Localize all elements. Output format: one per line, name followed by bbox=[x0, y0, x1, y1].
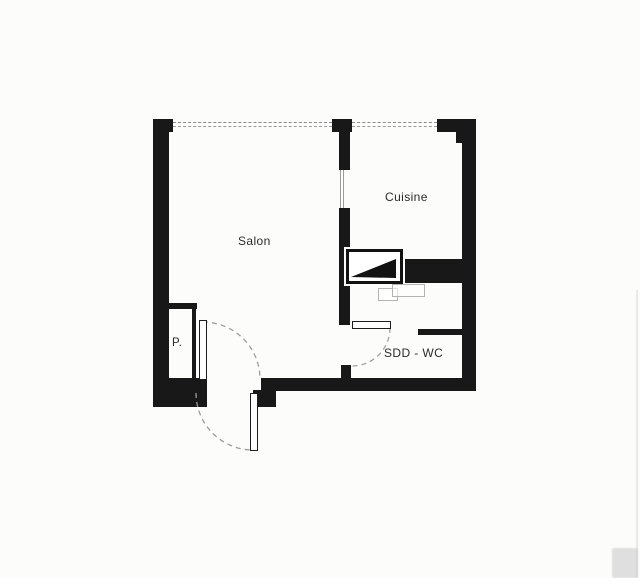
floor-plan-canvas: Salon Cuisine P. SDD - WC bbox=[0, 0, 640, 578]
entry-door-leaf-outer bbox=[250, 393, 258, 451]
technical-duct bbox=[346, 249, 403, 284]
top-window-cuisine bbox=[352, 122, 437, 127]
interior-glazed-panel bbox=[340, 170, 344, 208]
wall-bottom bbox=[261, 378, 476, 391]
washbasin-outline-right bbox=[392, 284, 425, 297]
wall-partition-upper bbox=[339, 132, 350, 170]
room-label-sdd-wc: SDD - WC bbox=[384, 346, 443, 360]
wall-cuisine-bottom bbox=[400, 259, 462, 283]
wall-left bbox=[153, 119, 169, 407]
sdd-door-leaf bbox=[352, 321, 391, 329]
entry-door-leaf-inner bbox=[199, 320, 207, 380]
wall-top-middle-pier bbox=[332, 119, 352, 132]
closet-wall-right bbox=[192, 303, 196, 378]
wall-sdd-partial bbox=[418, 329, 462, 335]
room-label-salon: Salon bbox=[238, 234, 271, 248]
scan-edge-streak bbox=[636, 290, 638, 578]
entry-door-arc-inner bbox=[203, 322, 260, 379]
door-swing-arcs bbox=[0, 0, 640, 578]
wall-bottom-left-block bbox=[153, 378, 207, 407]
top-window-salon bbox=[173, 122, 332, 127]
wall-right bbox=[462, 142, 476, 391]
scan-corner-artifact bbox=[612, 548, 638, 578]
wall-sdd-door-stub bbox=[341, 365, 351, 378]
wall-top-left-pier bbox=[153, 119, 173, 132]
room-label-cuisine: Cuisine bbox=[385, 190, 428, 204]
duct-hatch-triangle bbox=[349, 252, 400, 281]
room-label-placard: P. bbox=[172, 337, 182, 349]
